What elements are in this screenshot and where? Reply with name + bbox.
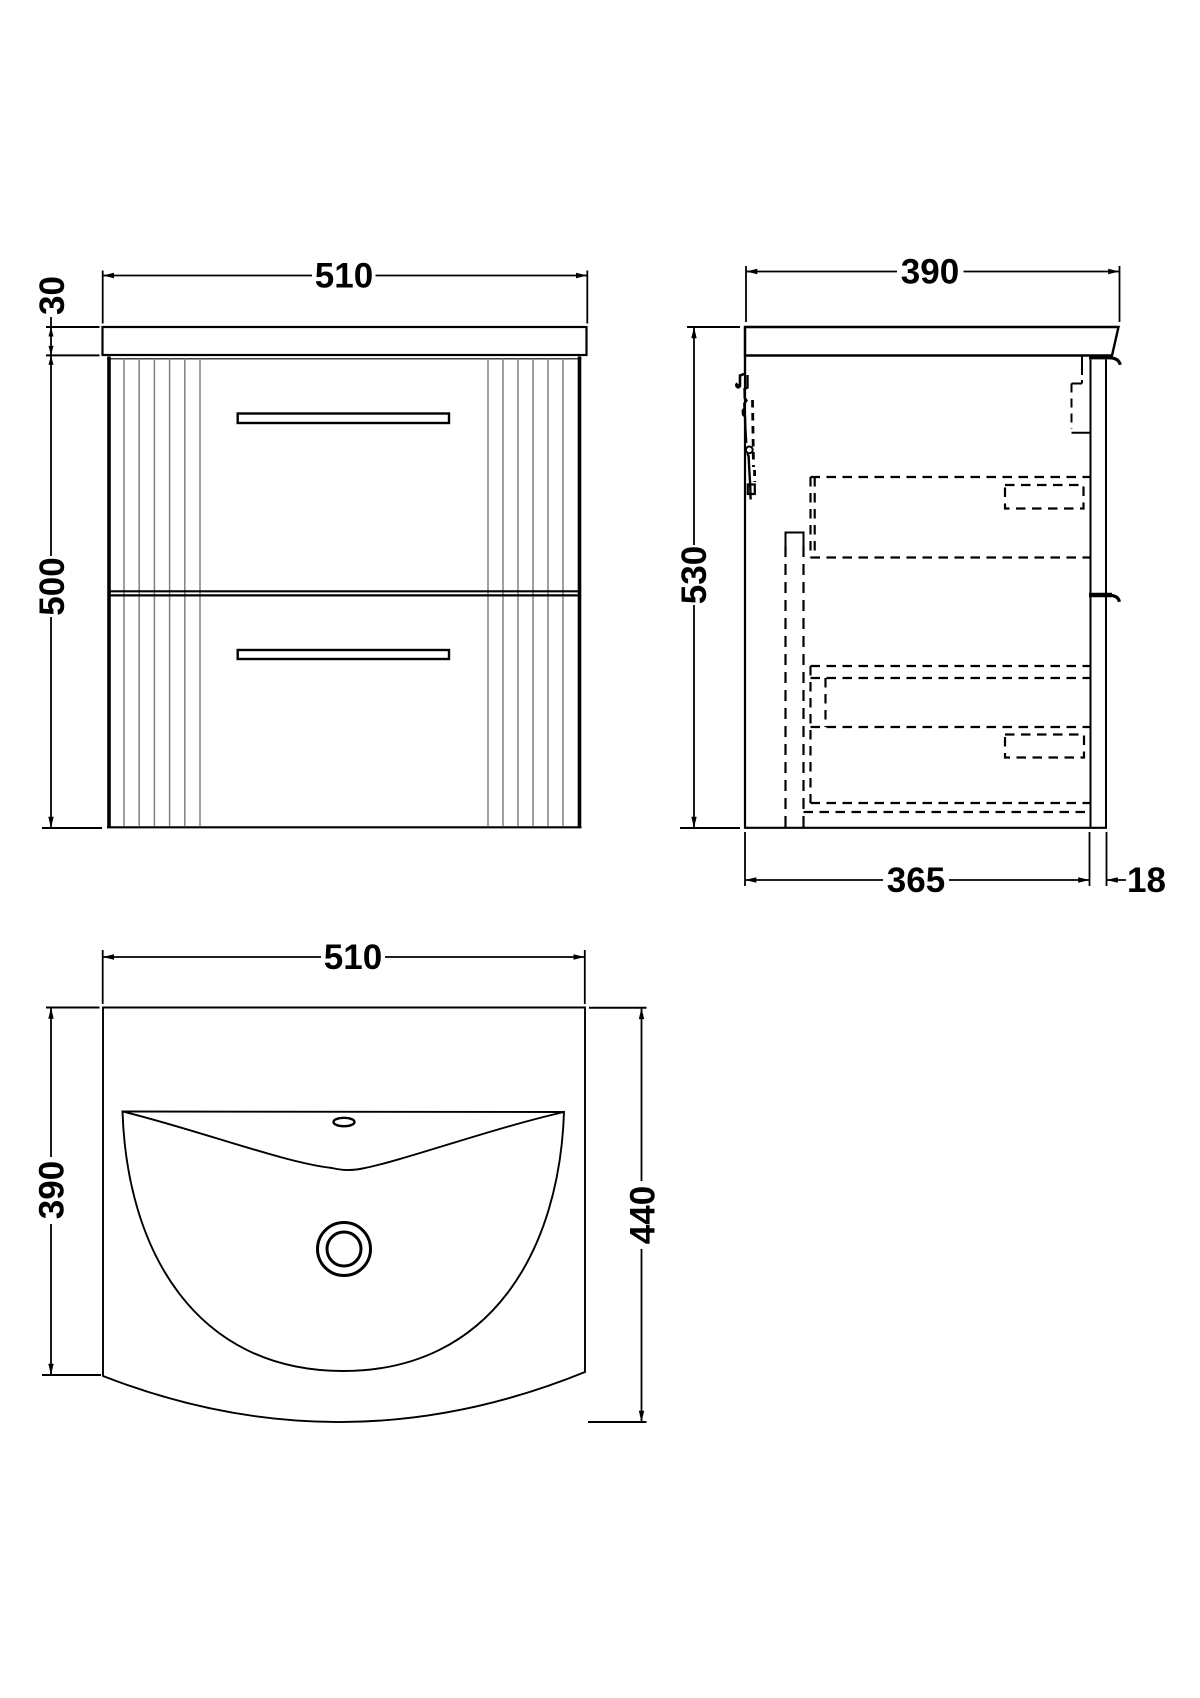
svg-text:365: 365	[887, 861, 945, 900]
svg-text:30: 30	[33, 276, 72, 315]
svg-text:510: 510	[324, 938, 382, 977]
svg-text:510: 510	[315, 257, 373, 296]
svg-text:500: 500	[33, 557, 72, 615]
svg-text:440: 440	[624, 1186, 663, 1244]
svg-text:390: 390	[33, 1161, 72, 1219]
svg-text:18: 18	[1127, 861, 1166, 900]
svg-text:390: 390	[901, 253, 959, 292]
svg-text:530: 530	[675, 546, 714, 604]
